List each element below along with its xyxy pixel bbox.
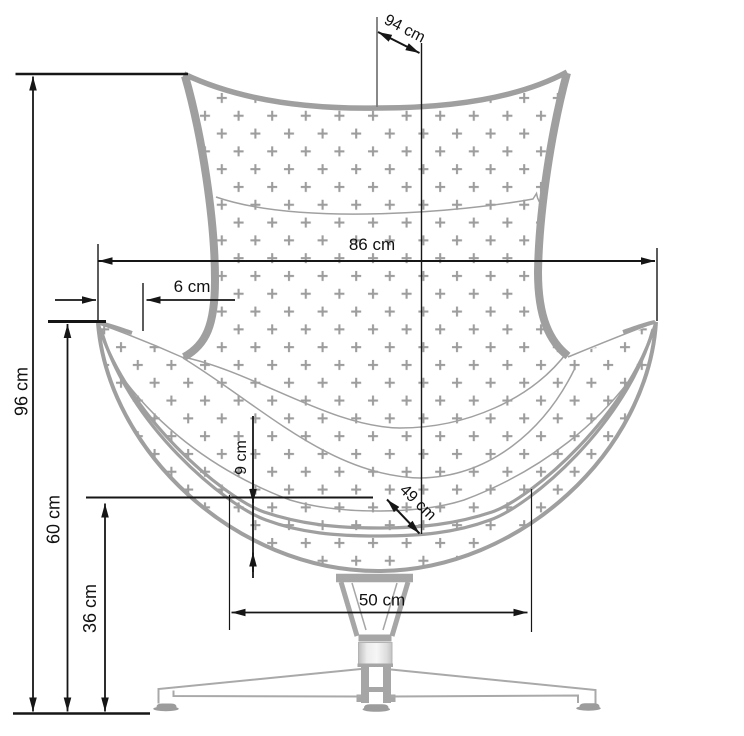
svg-text:60 cm: 60 cm — [44, 495, 64, 544]
svg-text:9 cm: 9 cm — [233, 440, 250, 475]
svg-text:36 cm: 36 cm — [80, 584, 100, 633]
svg-text:6 cm: 6 cm — [174, 277, 211, 296]
svg-text:86 cm: 86 cm — [349, 235, 395, 254]
svg-text:50 cm: 50 cm — [359, 591, 405, 610]
svg-text:96 cm: 96 cm — [12, 367, 32, 416]
svg-text:94 cm: 94 cm — [381, 12, 428, 47]
